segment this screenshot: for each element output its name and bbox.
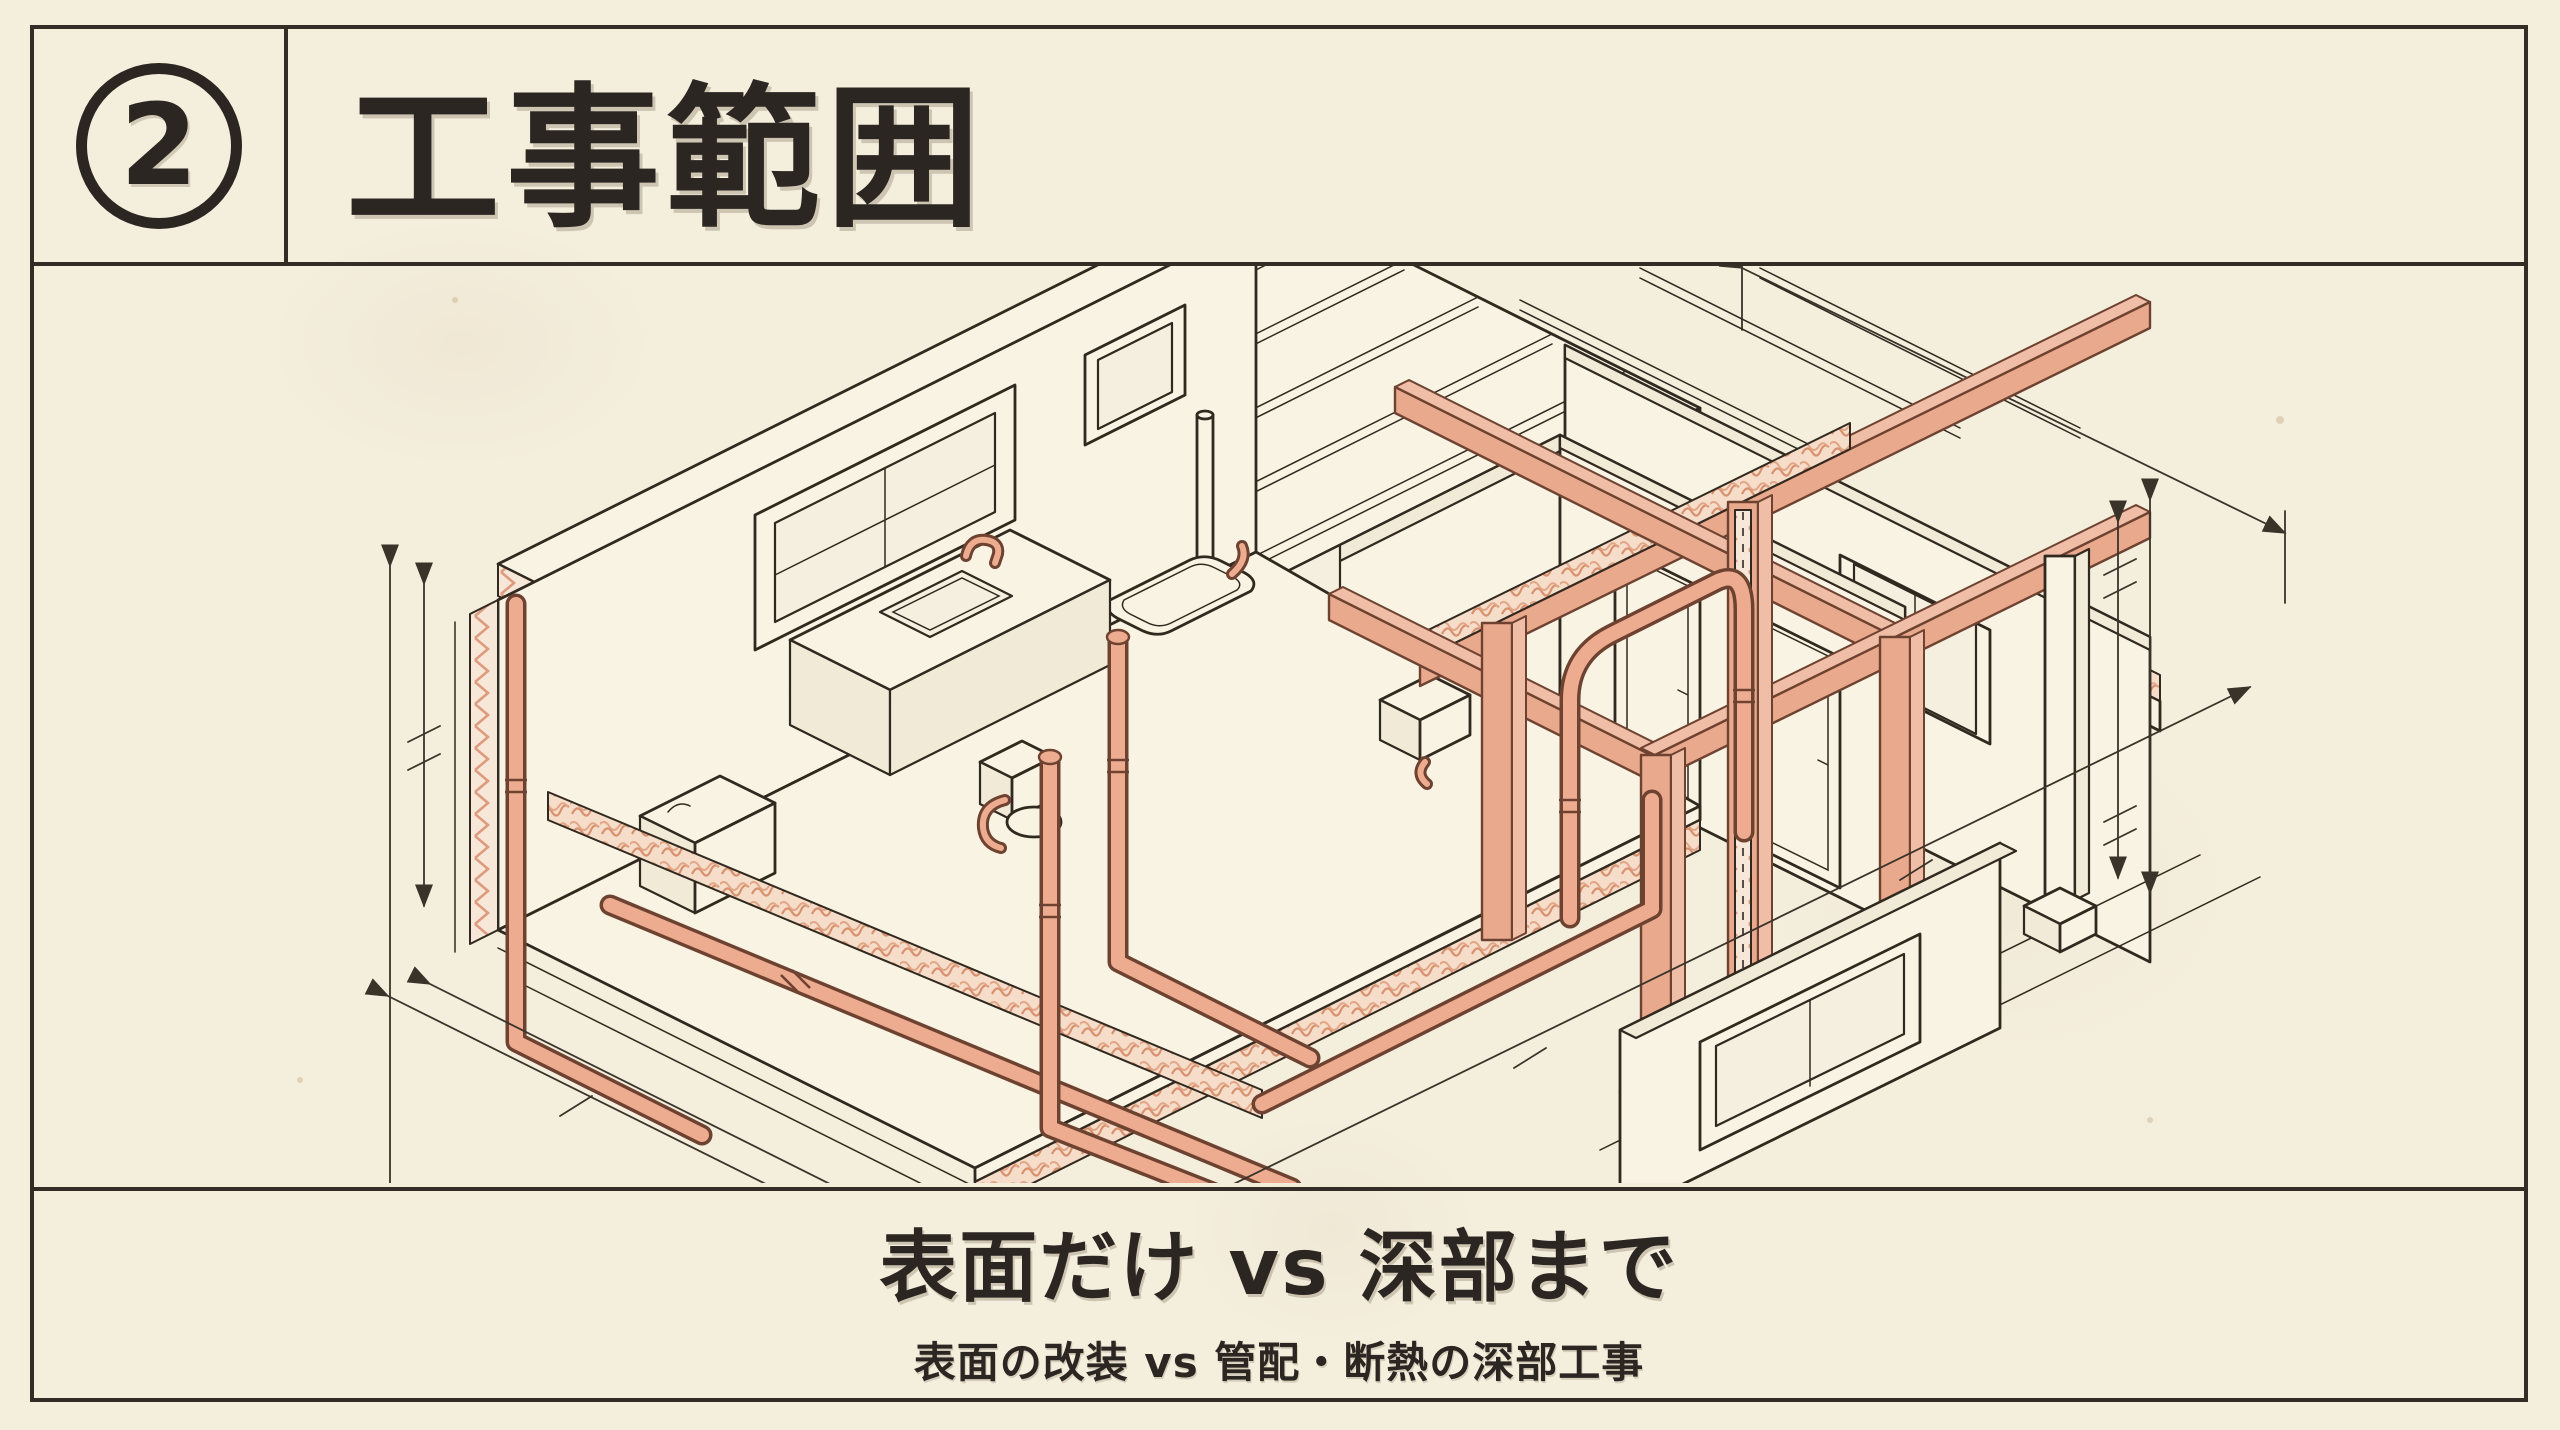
section-number: 2 [120,90,198,202]
section-number-cell: 2 [34,29,288,262]
caption-heading: 表面だけ vs 深部まで [34,1205,2524,1317]
corner-post [2045,556,2075,900]
wall-cavity-insulation [470,600,498,944]
page-title: 工事範囲 [346,34,986,257]
title-cell: 工事範囲 [288,29,2524,262]
header: 2 工事範囲 [34,29,2524,266]
section-number-badge: 2 [76,63,242,229]
dimension-lines-left [390,566,440,1226]
caption: 表面だけ vs 深部まで 表面の改装 vs 管配・断熱の深部工事 [34,1187,2524,1398]
caption-subheading: 表面の改装 vs 管配・断熱の深部工事 [34,1329,2524,1390]
